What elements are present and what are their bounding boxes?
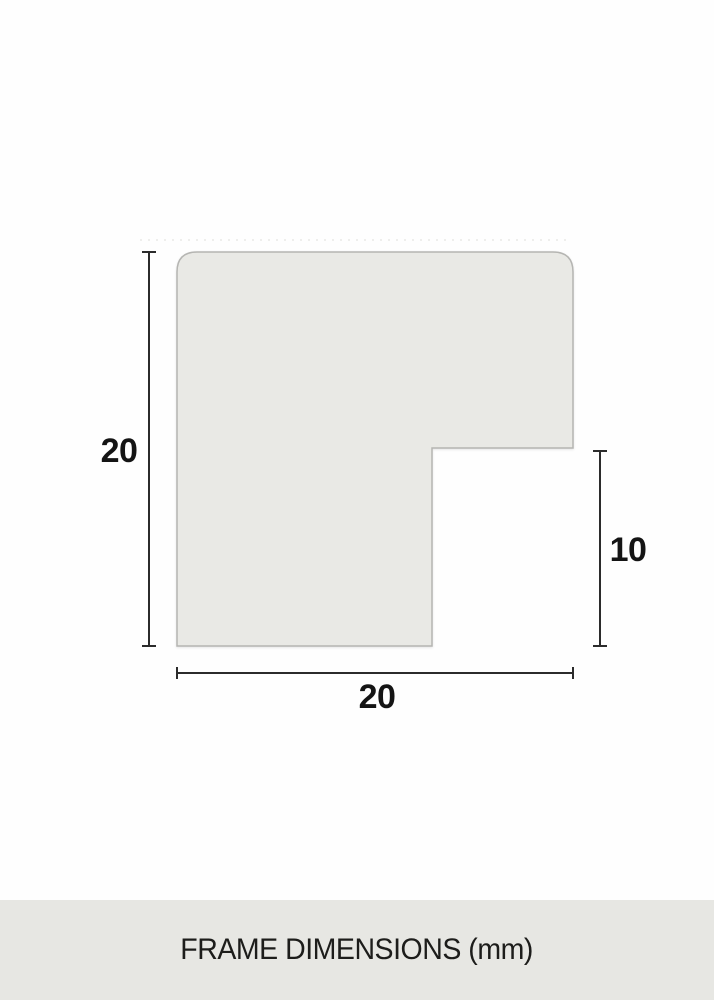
caption-text: FRAME DIMENSIONS (mm) [181, 933, 534, 967]
rabbet-dimension-line [593, 451, 607, 646]
profile-diagram-svg [0, 0, 714, 1000]
caption-bar: FRAME DIMENSIONS (mm) [0, 900, 714, 1000]
rabbet-dimension-label: 10 [606, 532, 650, 568]
frame-profile-shape [177, 252, 573, 646]
height-dimension-label: 20 [95, 433, 143, 469]
height-dimension-line [142, 252, 156, 646]
width-dimension-label: 20 [351, 679, 403, 715]
frame-dimension-diagram: 20 20 10 FRAME DIMENSIONS (mm) [0, 0, 714, 1000]
